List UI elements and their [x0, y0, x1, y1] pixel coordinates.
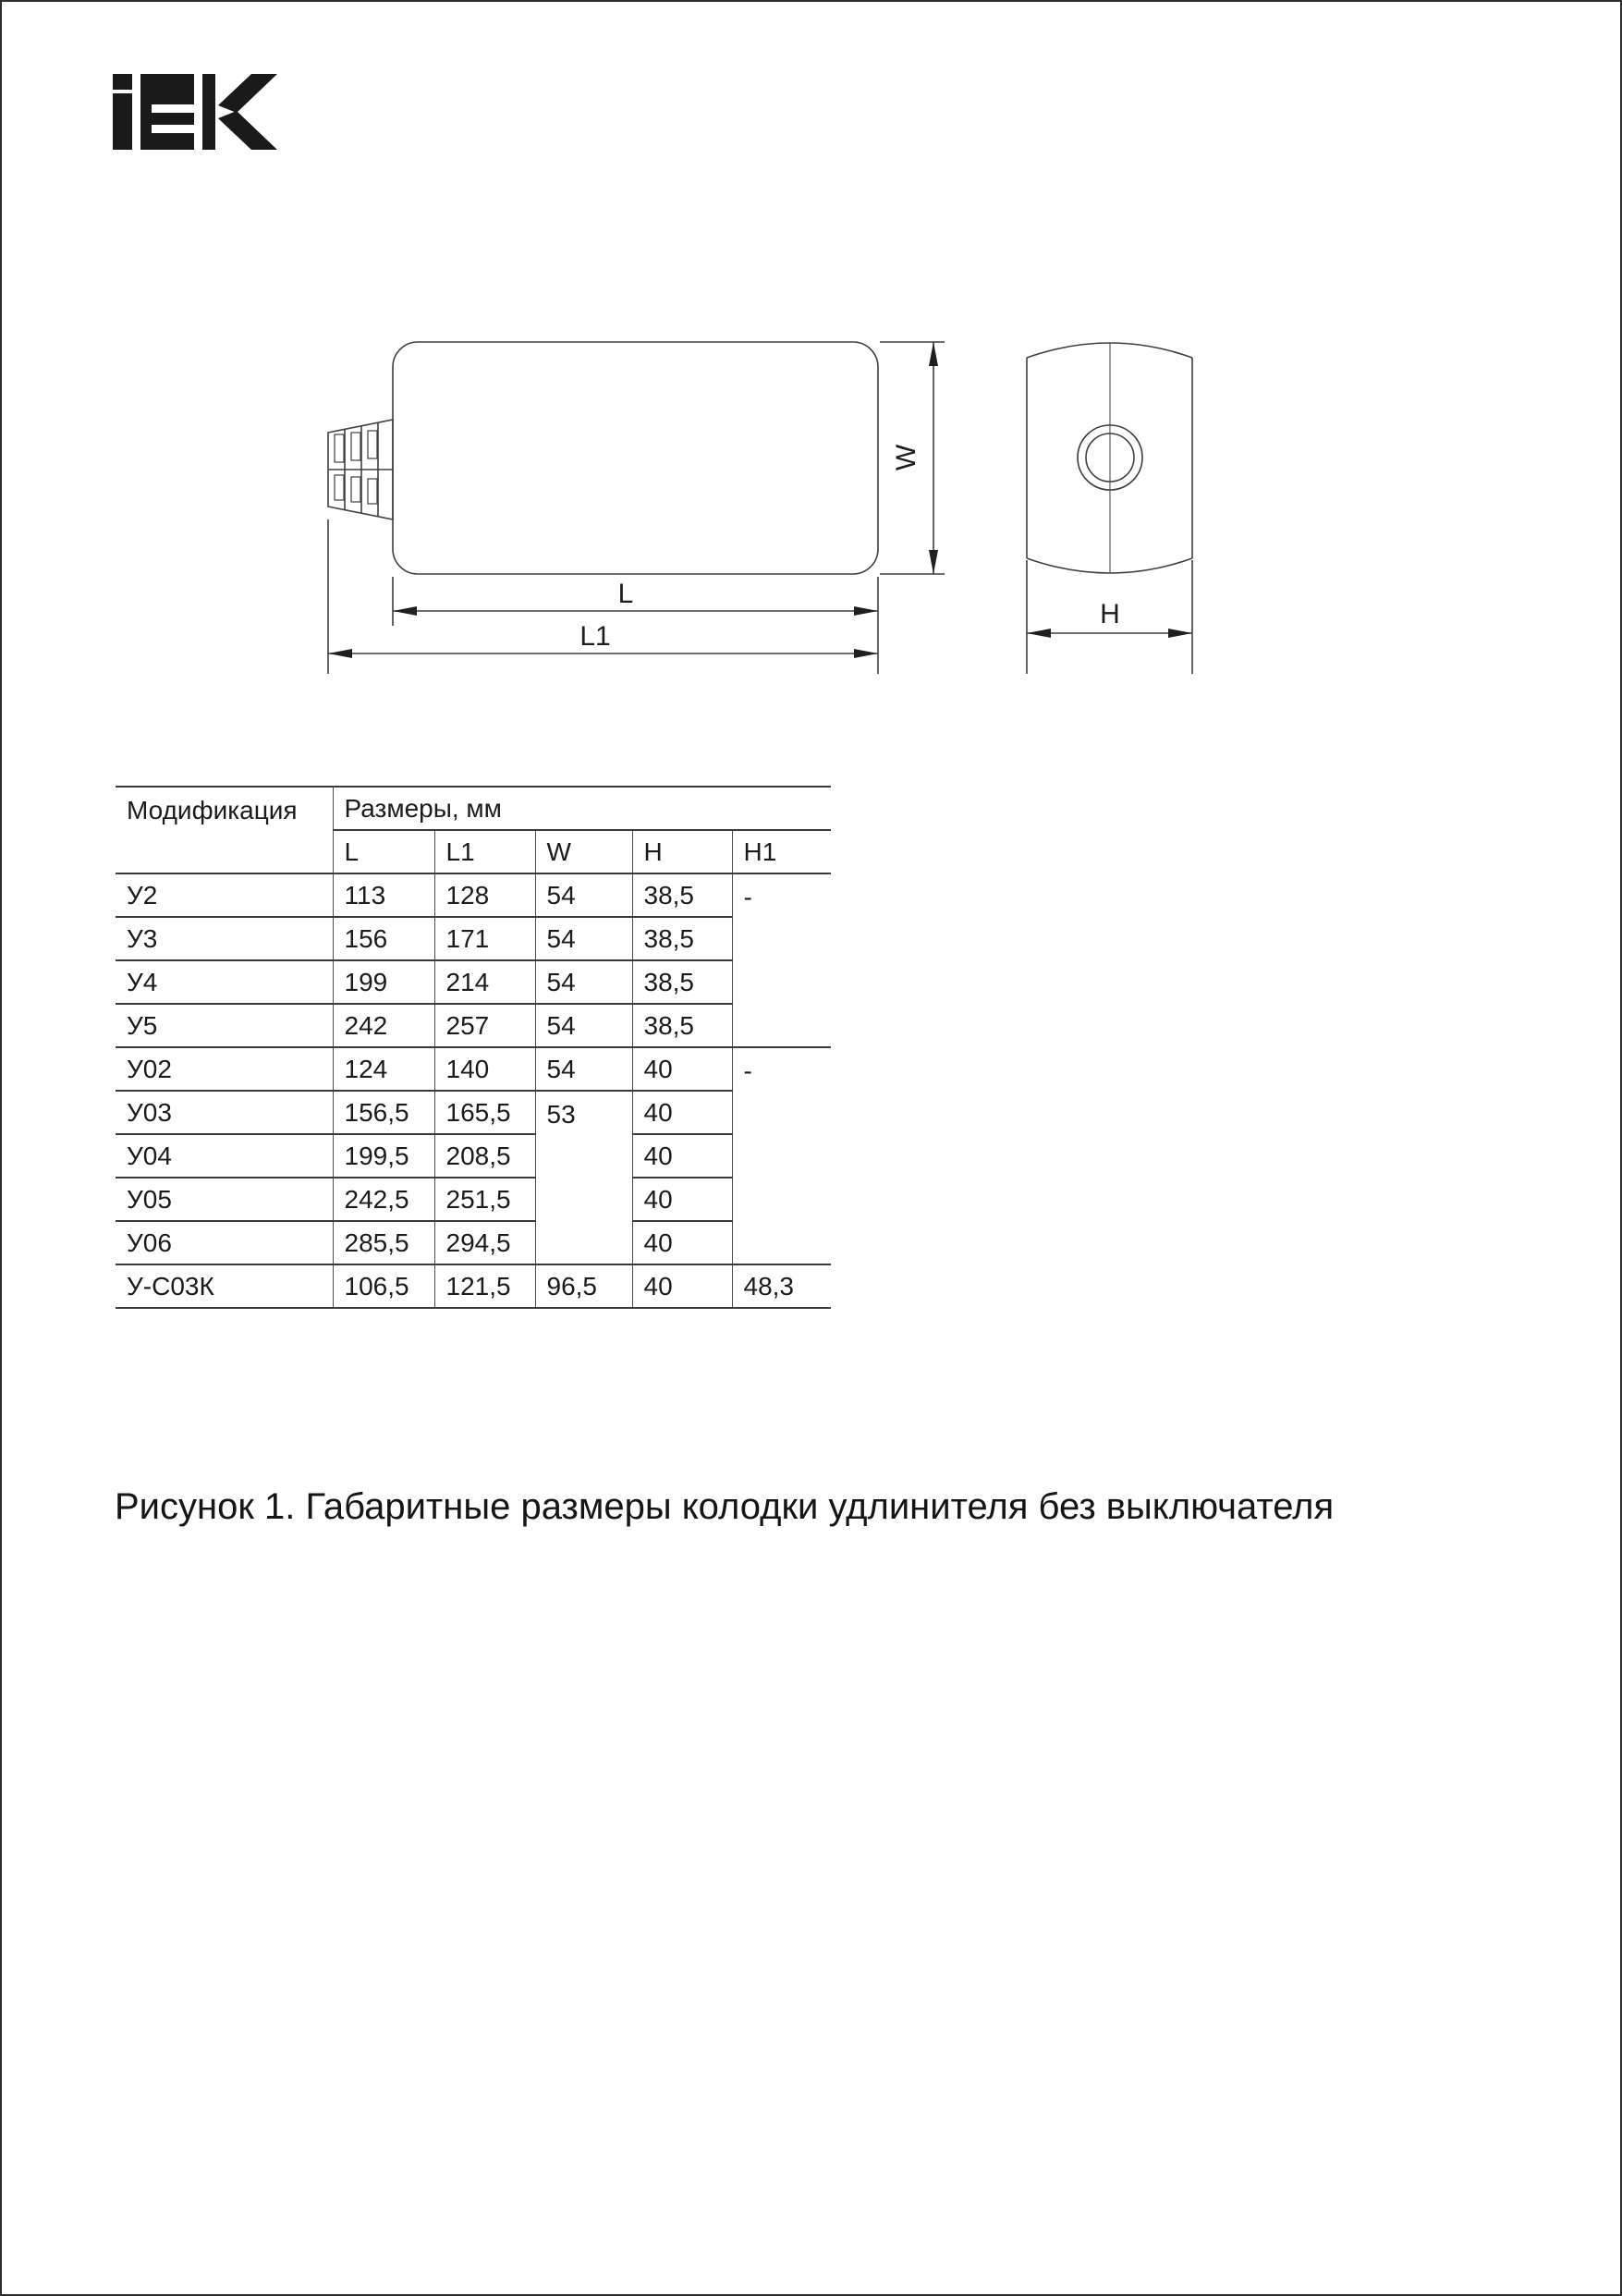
cell-h1: - [732, 873, 831, 1047]
cell-l: 199,5 [333, 1134, 434, 1178]
cell-modification: У5 [116, 1004, 333, 1047]
logo-i-dot [113, 74, 132, 90]
logo-k-upper-arm [218, 74, 277, 113]
label-W: W [891, 444, 921, 470]
cell-h: 40 [632, 1091, 732, 1134]
table-row: У4 199 214 54 38,5 [116, 960, 831, 1004]
table-header-row-1: Модификация Размеры, мм [116, 787, 831, 830]
table-row: У02 124 140 54 40 - [116, 1047, 831, 1091]
logo-k-lower-arm [218, 111, 277, 150]
table-row: У-С03К 106,5 121,5 96,5 40 48,3 [116, 1264, 831, 1308]
header-modification: Модификация [116, 787, 333, 873]
label-L: L [618, 579, 634, 609]
cell-h: 40 [632, 1178, 732, 1221]
cell-modification: У03 [116, 1091, 333, 1134]
cell-modification: У04 [116, 1134, 333, 1178]
body-end-view [1027, 343, 1192, 573]
cell-h: 40 [632, 1134, 732, 1178]
figure-caption: Рисунок 1. Габаритные размеры колодки уд… [115, 1486, 1334, 1528]
cell-modification: У-С03К [116, 1264, 333, 1308]
cable-gland [328, 420, 393, 519]
iek-brand-logo [113, 74, 277, 150]
cell-l: 113 [333, 873, 434, 917]
cell-h1: - [732, 1047, 831, 1264]
cell-l1: 128 [434, 873, 535, 917]
logo-i-stem [113, 93, 132, 150]
cell-l: 106,5 [333, 1264, 434, 1308]
header-col-W: W [535, 830, 632, 873]
cell-l: 242 [333, 1004, 434, 1047]
cell-w: 96,5 [535, 1264, 632, 1308]
cell-l1: 257 [434, 1004, 535, 1047]
table-row: У04 199,5 208,5 40 [116, 1134, 831, 1178]
cell-l1: 214 [434, 960, 535, 1004]
cell-w: 54 [535, 960, 632, 1004]
cell-modification: У02 [116, 1047, 333, 1091]
cell-w: 54 [535, 873, 632, 917]
cell-h: 38,5 [632, 917, 732, 960]
cell-l1: 294,5 [434, 1221, 535, 1264]
table-row: У06 285,5 294,5 40 [116, 1221, 831, 1264]
header-col-H: H [632, 830, 732, 873]
cell-l: 199 [333, 960, 434, 1004]
logo-e-slot-bottom [152, 125, 194, 133]
document-page: L L1 W H Модификация Размеры, мм L L1 W … [0, 0, 1622, 2296]
label-L1: L1 [579, 621, 610, 652]
table-row: У2 113 128 54 38,5 - [116, 873, 831, 917]
cell-modification: У2 [116, 873, 333, 917]
cell-h: 40 [632, 1264, 732, 1308]
logo-e-slot-top [152, 104, 194, 113]
cell-modification: У05 [116, 1178, 333, 1221]
cell-l1: 121,5 [434, 1264, 535, 1308]
cell-l: 124 [333, 1047, 434, 1091]
dimensions-table: Модификация Размеры, мм L L1 W H H1 У2 1… [116, 786, 831, 1309]
cell-l1: 171 [434, 917, 535, 960]
cell-w: 54 [535, 1004, 632, 1047]
cell-h: 38,5 [632, 873, 732, 917]
cell-modification: У3 [116, 917, 333, 960]
cell-h1: 48,3 [732, 1264, 831, 1308]
header-col-L1: L1 [434, 830, 535, 873]
cell-l1: 208,5 [434, 1134, 535, 1178]
cell-w: 54 [535, 917, 632, 960]
logo-k-stem [202, 74, 215, 150]
cell-h: 40 [632, 1221, 732, 1264]
table-row: У05 242,5 251,5 40 [116, 1178, 831, 1221]
cell-l: 285,5 [333, 1221, 434, 1264]
cell-l1: 140 [434, 1047, 535, 1091]
table-row: У5 242 257 54 38,5 [116, 1004, 831, 1047]
cell-h: 38,5 [632, 1004, 732, 1047]
label-H: H [1100, 599, 1120, 629]
table-row: У03 156,5 165,5 53 40 [116, 1091, 831, 1134]
cell-w: 54 [535, 1047, 632, 1091]
header-col-L: L [333, 830, 434, 873]
table-row: У3 156 171 54 38,5 [116, 917, 831, 960]
cell-modification: У4 [116, 960, 333, 1004]
cell-l: 242,5 [333, 1178, 434, 1221]
body-side-view [393, 342, 878, 574]
cell-l1: 165,5 [434, 1091, 535, 1134]
cell-h: 40 [632, 1047, 732, 1091]
header-dimensions-group: Размеры, мм [333, 787, 831, 830]
cell-l: 156 [333, 917, 434, 960]
cell-h: 38,5 [632, 960, 732, 1004]
cell-l: 156,5 [333, 1091, 434, 1134]
dimensional-drawing: L L1 W H [298, 298, 1268, 686]
header-col-H1: H1 [732, 830, 831, 873]
cell-w: 53 [535, 1091, 632, 1264]
cell-modification: У06 [116, 1221, 333, 1264]
cell-l1: 251,5 [434, 1178, 535, 1221]
